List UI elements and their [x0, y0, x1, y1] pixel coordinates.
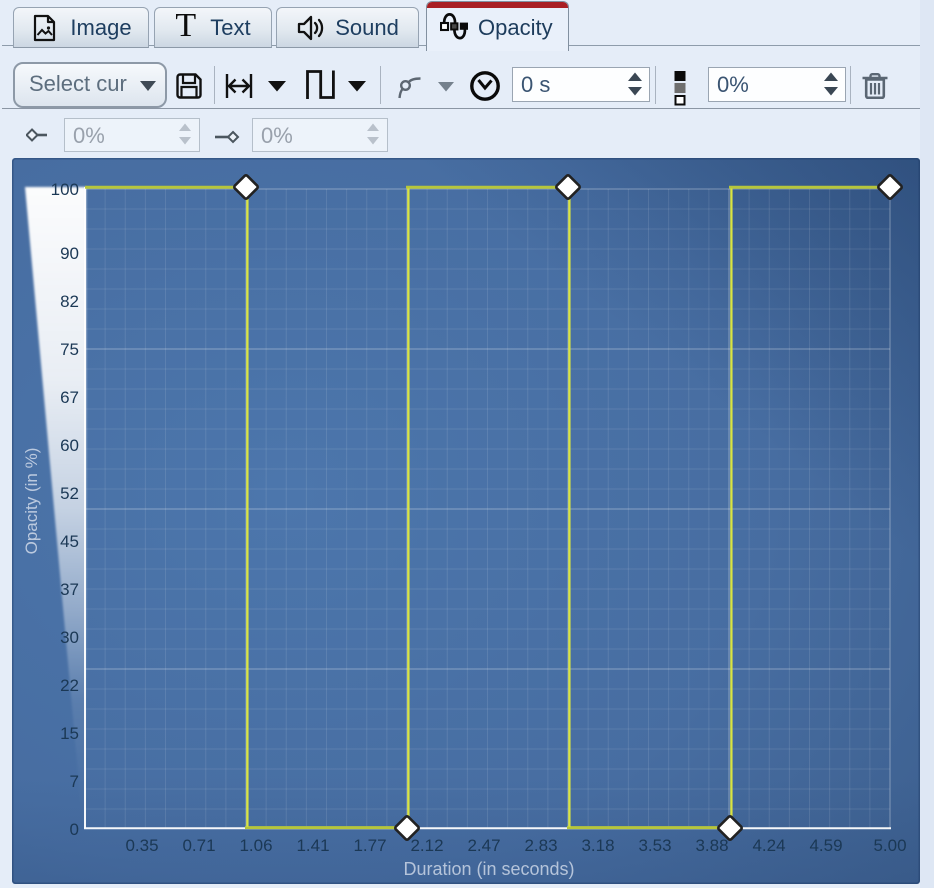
svg-text:37: 37	[60, 580, 79, 599]
svg-text:60: 60	[60, 436, 79, 455]
svg-text:3.18: 3.18	[581, 836, 614, 855]
svg-text:82: 82	[60, 292, 79, 311]
svg-text:2.83: 2.83	[524, 836, 557, 855]
svg-text:0: 0	[70, 820, 79, 839]
svg-text:22: 22	[60, 676, 79, 695]
svg-text:0.35: 0.35	[125, 836, 158, 855]
svg-text:5.00: 5.00	[873, 836, 906, 855]
svg-text:4.24: 4.24	[752, 836, 785, 855]
svg-text:75: 75	[60, 340, 79, 359]
svg-text:2.47: 2.47	[467, 836, 500, 855]
svg-text:0.71: 0.71	[182, 836, 215, 855]
svg-text:Duration (in seconds): Duration (in seconds)	[403, 859, 574, 879]
svg-text:30: 30	[60, 628, 79, 647]
svg-text:15: 15	[60, 724, 79, 743]
svg-text:2.12: 2.12	[410, 836, 443, 855]
svg-text:7: 7	[70, 772, 79, 791]
svg-text:3.53: 3.53	[638, 836, 671, 855]
svg-text:67: 67	[60, 388, 79, 407]
svg-text:45: 45	[60, 532, 79, 551]
svg-text:90: 90	[60, 244, 79, 263]
svg-text:3.88: 3.88	[695, 836, 728, 855]
svg-text:Opacity (in %): Opacity (in %)	[22, 448, 41, 555]
svg-text:1.77: 1.77	[353, 836, 386, 855]
svg-text:52: 52	[60, 484, 79, 503]
svg-text:1.41: 1.41	[296, 836, 329, 855]
svg-text:1.06: 1.06	[239, 836, 272, 855]
svg-text:100: 100	[51, 180, 79, 199]
svg-text:4.59: 4.59	[809, 836, 842, 855]
